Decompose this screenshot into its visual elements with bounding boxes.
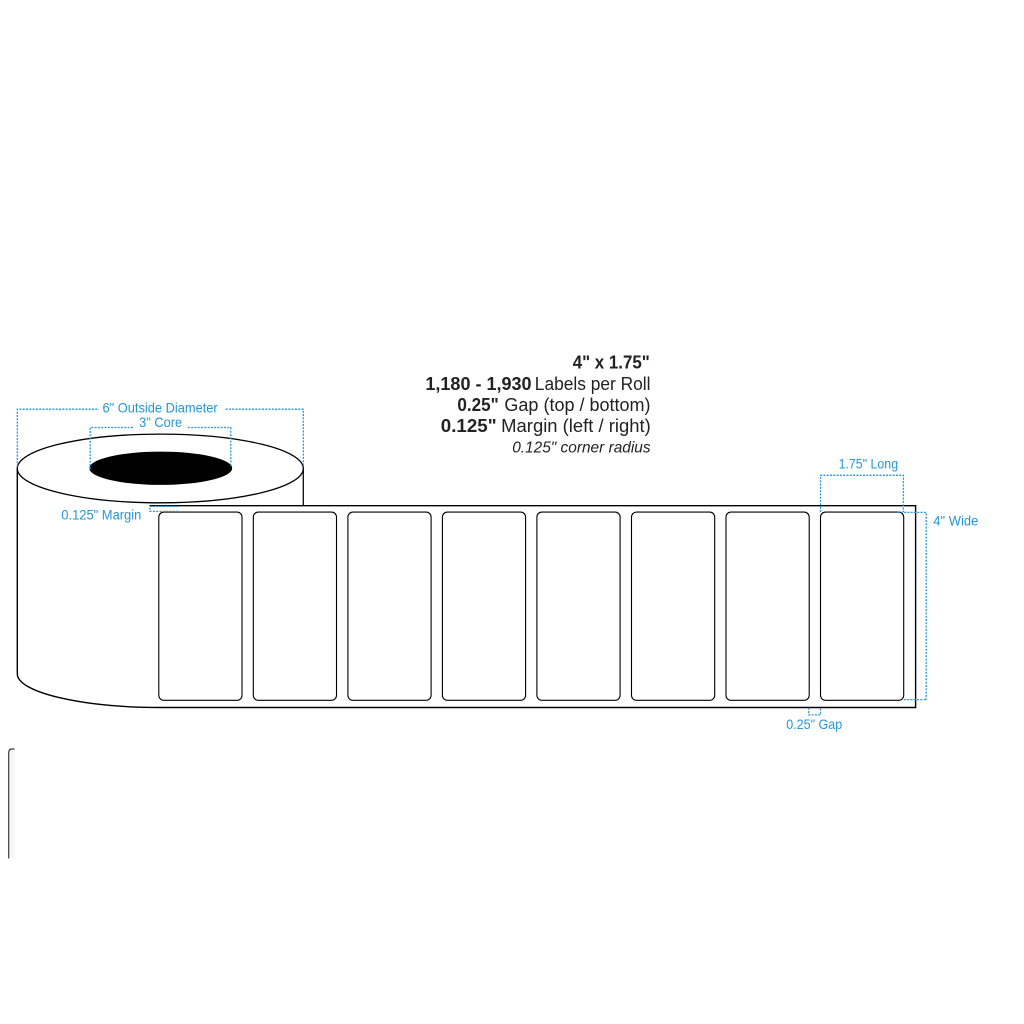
svg-text:1.75" Long: 1.75" Long [839, 456, 899, 472]
svg-text:3" Core: 3" Core [139, 414, 182, 430]
svg-text:Gap (top / bottom): Gap (top / bottom) [504, 395, 650, 415]
svg-text:0.125" Margin: 0.125" Margin [61, 507, 141, 523]
svg-text:0.25": 0.25" [457, 395, 498, 415]
svg-text:6" Outside Diameter: 6" Outside Diameter [103, 399, 219, 415]
svg-text:Labels per Roll: Labels per Roll [535, 374, 651, 394]
svg-text:4" Wide: 4" Wide [933, 513, 978, 529]
svg-text:0.25" Gap: 0.25" Gap [786, 716, 842, 732]
svg-text:1,180 - 1,930: 1,180 - 1,930 [425, 374, 531, 394]
svg-text:4" x 1.75": 4" x 1.75" [573, 353, 650, 373]
svg-text:Margin (left / right): Margin (left / right) [501, 416, 651, 436]
svg-text:0.125": 0.125" [441, 416, 497, 436]
svg-text:0.125" corner radius: 0.125" corner radius [512, 440, 650, 457]
